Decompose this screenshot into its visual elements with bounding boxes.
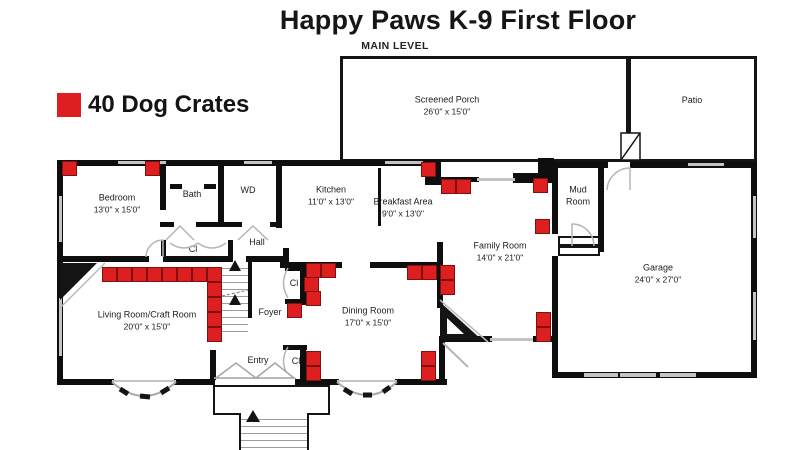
dog-crate: [207, 267, 222, 282]
dog-crate: [177, 267, 192, 282]
dog-crate: [441, 179, 456, 194]
dog-crate: [456, 179, 471, 194]
dog-crate: [306, 351, 321, 366]
room-label-patio: Patio: [682, 95, 703, 107]
room-label-dining-room: Dining Room17'0" x 15'0": [342, 306, 394, 329]
room-label-closet-foyer: Cl: [290, 278, 299, 290]
dog-crate: [536, 312, 551, 327]
floor-plan-page: { "title": "Happy Paws K-9 First Floor",…: [0, 0, 800, 450]
dog-crate: [407, 265, 422, 280]
dog-crate: [145, 161, 160, 176]
room-label-wd: WD: [241, 185, 256, 197]
dog-crate: [306, 366, 321, 381]
crates-layer: [0, 0, 800, 450]
room-label-foyer: Foyer: [258, 307, 281, 319]
dog-crate: [287, 303, 302, 318]
dog-crate: [306, 291, 321, 306]
room-label-kitchen: Kitchen11'0" x 13'0": [308, 185, 354, 208]
dog-crate: [421, 351, 436, 366]
dog-crate: [536, 327, 551, 342]
dog-crate: [207, 327, 222, 342]
floor-plan: Happy Paws K-9 First Floor MAIN LEVEL 40…: [0, 0, 800, 450]
dog-crate: [207, 297, 222, 312]
dog-crate: [207, 282, 222, 297]
room-label-closet-entry: Cl: [292, 356, 301, 368]
room-label-screened-porch: Screened Porch26'0" x 15'0": [415, 95, 480, 118]
room-label-mud-room: Mud Room: [560, 184, 596, 207]
room-label-garage: Garage24'0" x 27'0": [635, 263, 682, 286]
dog-crate: [321, 263, 336, 278]
dog-crate: [306, 263, 321, 278]
dog-crate: [147, 267, 162, 282]
room-label-living-room: Living Room/Craft Room20'0" x 15'0": [98, 310, 197, 333]
dog-crate: [117, 267, 132, 282]
dog-crate: [304, 277, 319, 292]
dog-crate: [62, 161, 77, 176]
room-label-bedroom: Bedroom13'0" x 15'0": [94, 193, 141, 216]
dog-crate: [192, 267, 207, 282]
dog-crate: [207, 312, 222, 327]
dog-crate: [440, 265, 455, 280]
dog-crate: [421, 366, 436, 381]
dog-crate: [132, 267, 147, 282]
room-label-closet-hall: Cl: [189, 244, 198, 256]
dog-crate: [533, 178, 548, 193]
dog-crate: [421, 162, 436, 177]
dog-crate: [535, 219, 550, 234]
dog-crate: [102, 267, 117, 282]
room-label-hall: Hall: [249, 237, 265, 249]
dog-crate: [162, 267, 177, 282]
room-label-bath: Bath: [183, 189, 202, 201]
dog-crate: [440, 280, 455, 295]
room-label-family-room: Family Room14'0" x 21'0": [473, 241, 526, 264]
dog-crate: [422, 265, 437, 280]
room-label-entry: Entry: [247, 355, 268, 367]
room-label-breakfast: Breakfast Area9'0" x 13'0": [373, 197, 432, 220]
